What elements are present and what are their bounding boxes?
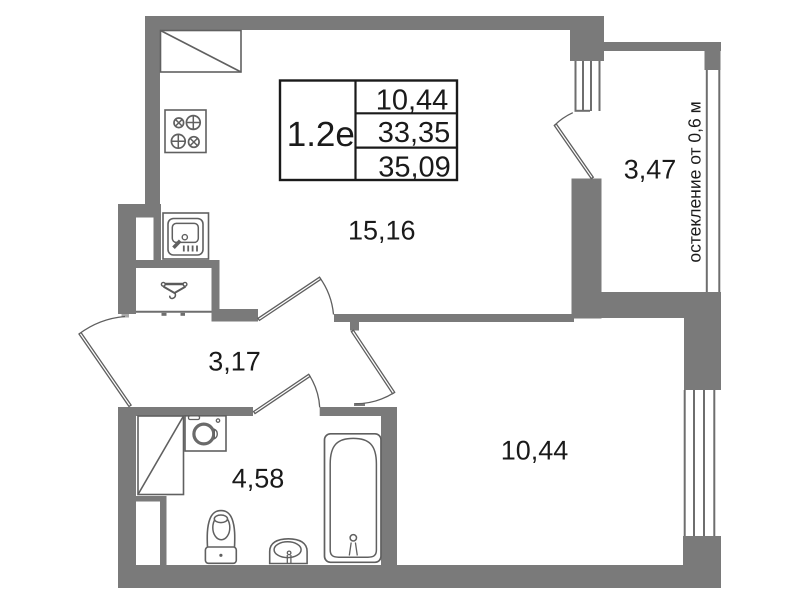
svg-text:33,35: 33,35: [378, 117, 451, 149]
svg-text:1.2е: 1.2е: [287, 115, 355, 154]
svg-text:15,16: 15,16: [348, 216, 416, 246]
svg-text:35,09: 35,09: [378, 151, 451, 183]
svg-text:4,58: 4,58: [232, 464, 285, 494]
svg-text:10,44: 10,44: [376, 85, 449, 117]
svg-text:3,47: 3,47: [624, 155, 677, 185]
svg-text:3,17: 3,17: [208, 347, 261, 377]
svg-text:остекление от 0,6 м: остекление от 0,6 м: [685, 101, 705, 262]
svg-text:10,44: 10,44: [501, 436, 569, 466]
